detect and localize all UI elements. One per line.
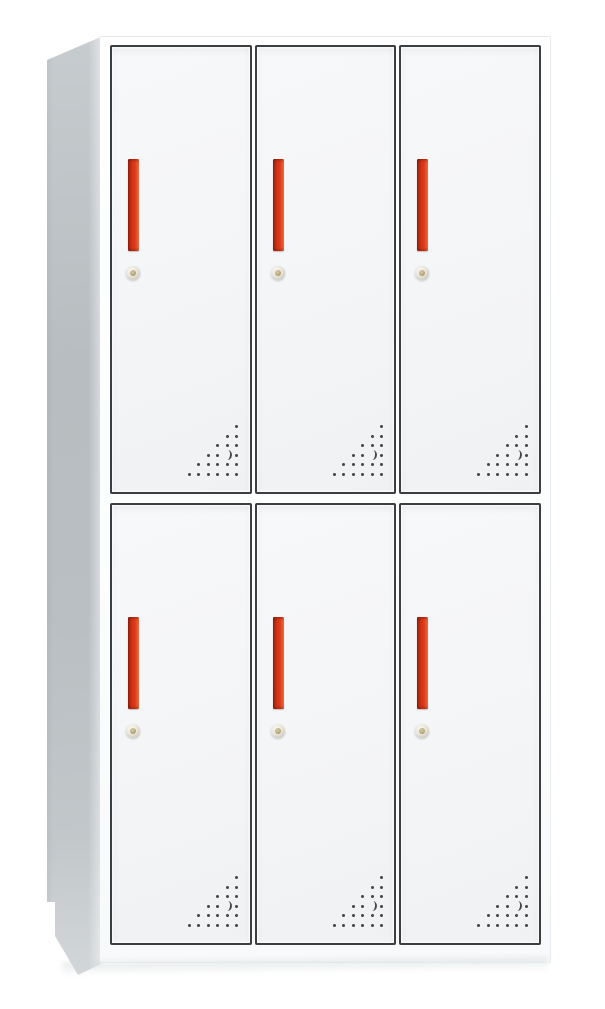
locker-door-top-center xyxy=(255,45,397,494)
vent-hole xyxy=(496,905,499,908)
vent-grille xyxy=(185,422,242,479)
vent-hole xyxy=(342,473,345,476)
vent-hole xyxy=(506,454,509,457)
vent-grille xyxy=(185,873,242,930)
vent-hole xyxy=(487,473,490,476)
locker-door-bottom-center xyxy=(255,503,397,945)
vent-hole xyxy=(352,473,355,476)
vent-hole xyxy=(487,463,490,466)
vent-hole xyxy=(525,425,528,428)
vent-hole xyxy=(197,924,200,927)
vent-hole xyxy=(515,924,518,927)
vent-hole xyxy=(496,914,499,917)
vent-hole xyxy=(380,444,383,447)
vent-hole xyxy=(207,463,210,466)
door-lock xyxy=(271,724,285,738)
vent-hole xyxy=(380,435,383,438)
vent-hole xyxy=(235,886,238,889)
keyhole-icon xyxy=(419,270,425,276)
vent-hole xyxy=(371,463,374,466)
vent-hole xyxy=(371,924,374,927)
vent-hole xyxy=(226,914,229,917)
vent-hole xyxy=(506,463,509,466)
vent-hole xyxy=(352,905,355,908)
vent-hole xyxy=(342,924,345,927)
vent-hole xyxy=(188,473,191,476)
vent-hole xyxy=(361,473,364,476)
vent-hole xyxy=(380,924,383,927)
vent-grille xyxy=(474,873,531,930)
vent-hole xyxy=(525,876,528,879)
vent-hole xyxy=(226,444,229,447)
vent-hole xyxy=(216,454,219,457)
vent-hole xyxy=(515,444,518,447)
vent-grille xyxy=(329,873,386,930)
vent-hole xyxy=(371,886,374,889)
vent-hole xyxy=(515,914,518,917)
vent-hole xyxy=(477,924,480,927)
vent-hole xyxy=(506,924,509,927)
vent-hole xyxy=(207,454,210,457)
vent-hole xyxy=(525,895,528,898)
vent-hole xyxy=(361,895,364,898)
vent-hole xyxy=(380,876,383,879)
door-grid xyxy=(110,45,541,945)
keyhole-icon xyxy=(130,728,136,734)
door-lock xyxy=(415,266,429,280)
vent-hole xyxy=(235,444,238,447)
vent-hole xyxy=(216,895,219,898)
vent-hole xyxy=(216,473,219,476)
vent-hole xyxy=(380,425,383,428)
vent-grille xyxy=(474,422,531,479)
vent-hole xyxy=(380,895,383,898)
door-handle xyxy=(273,617,284,709)
vent-hole xyxy=(226,463,229,466)
vent-crescent-hole xyxy=(367,900,377,911)
vent-hole xyxy=(197,914,200,917)
vent-hole xyxy=(361,924,364,927)
vent-hole xyxy=(506,444,509,447)
vent-hole xyxy=(235,876,238,879)
vent-hole xyxy=(207,914,210,917)
vent-hole xyxy=(226,895,229,898)
locker-door-bottom-left xyxy=(110,503,252,945)
vent-crescent-hole xyxy=(512,449,522,460)
vent-hole xyxy=(216,914,219,917)
vent-hole xyxy=(352,463,355,466)
keyhole-icon xyxy=(275,728,281,734)
locker-door-top-left xyxy=(110,45,252,494)
vent-grille xyxy=(329,422,386,479)
vent-hole xyxy=(226,924,229,927)
keyhole-icon xyxy=(275,270,281,276)
vent-crescent-hole xyxy=(512,900,522,911)
locker-door-bottom-right xyxy=(399,503,541,945)
vent-hole xyxy=(525,473,528,476)
keyhole-icon xyxy=(419,728,425,734)
vent-hole xyxy=(380,905,383,908)
vent-hole xyxy=(216,463,219,466)
vent-hole xyxy=(496,473,499,476)
vent-crescent-hole xyxy=(223,900,233,911)
vent-hole xyxy=(235,463,238,466)
vent-hole xyxy=(525,454,528,457)
vent-hole xyxy=(515,895,518,898)
vent-hole xyxy=(515,886,518,889)
vent-hole xyxy=(342,463,345,466)
vent-hole xyxy=(216,444,219,447)
vent-hole xyxy=(380,454,383,457)
vent-hole xyxy=(380,886,383,889)
vent-hole xyxy=(188,924,191,927)
door-handle xyxy=(128,159,139,251)
vent-hole xyxy=(207,473,210,476)
vent-hole xyxy=(371,895,374,898)
vent-hole xyxy=(515,435,518,438)
vent-hole xyxy=(380,463,383,466)
vent-hole xyxy=(525,463,528,466)
vent-hole xyxy=(333,924,336,927)
cabinet-front-panel xyxy=(100,36,551,963)
vent-hole xyxy=(361,463,364,466)
vent-hole xyxy=(525,914,528,917)
vent-hole xyxy=(525,435,528,438)
vent-hole xyxy=(235,914,238,917)
vent-hole xyxy=(342,914,345,917)
vent-hole xyxy=(352,454,355,457)
vent-hole xyxy=(487,914,490,917)
vent-hole xyxy=(207,905,210,908)
vent-hole xyxy=(235,905,238,908)
door-lock xyxy=(271,266,285,280)
vent-crescent-hole xyxy=(223,449,233,460)
keyhole-icon xyxy=(130,270,136,276)
door-lock xyxy=(126,724,140,738)
vent-hole xyxy=(235,473,238,476)
vent-hole xyxy=(197,463,200,466)
door-handle xyxy=(417,159,428,251)
vent-hole xyxy=(226,473,229,476)
vent-hole xyxy=(525,886,528,889)
vent-hole xyxy=(487,924,490,927)
vent-hole xyxy=(496,924,499,927)
locker-door-top-right xyxy=(399,45,541,494)
vent-hole xyxy=(216,905,219,908)
vent-hole xyxy=(496,463,499,466)
vent-hole xyxy=(352,924,355,927)
vent-hole xyxy=(380,914,383,917)
door-lock xyxy=(415,724,429,738)
vent-hole xyxy=(477,473,480,476)
vent-hole xyxy=(235,435,238,438)
vent-hole xyxy=(207,924,210,927)
vent-hole xyxy=(496,454,499,457)
vent-hole xyxy=(525,924,528,927)
vent-hole xyxy=(515,463,518,466)
vent-hole xyxy=(525,905,528,908)
vent-hole xyxy=(506,905,509,908)
vent-hole xyxy=(515,473,518,476)
vent-hole xyxy=(216,924,219,927)
vent-hole xyxy=(371,444,374,447)
cabinet-side-panel xyxy=(45,34,105,978)
vent-hole xyxy=(361,905,364,908)
vent-hole xyxy=(371,435,374,438)
vent-hole xyxy=(506,895,509,898)
vent-hole xyxy=(371,914,374,917)
door-lock xyxy=(126,266,140,280)
vent-hole xyxy=(361,444,364,447)
vent-hole xyxy=(226,886,229,889)
vent-hole xyxy=(525,444,528,447)
door-handle xyxy=(273,159,284,251)
vent-hole xyxy=(235,895,238,898)
product-photo-scene xyxy=(0,0,605,1009)
vent-crescent-hole xyxy=(367,449,377,460)
vent-hole xyxy=(352,914,355,917)
vent-hole xyxy=(380,473,383,476)
vent-hole xyxy=(361,914,364,917)
vent-hole xyxy=(506,473,509,476)
vent-hole xyxy=(371,473,374,476)
vent-hole xyxy=(197,473,200,476)
vent-hole xyxy=(235,425,238,428)
vent-hole xyxy=(506,914,509,917)
vent-hole xyxy=(333,473,336,476)
door-handle xyxy=(128,617,139,709)
vent-hole xyxy=(235,454,238,457)
vent-hole xyxy=(235,924,238,927)
vent-hole xyxy=(226,435,229,438)
door-handle xyxy=(417,617,428,709)
vent-hole xyxy=(361,454,364,457)
